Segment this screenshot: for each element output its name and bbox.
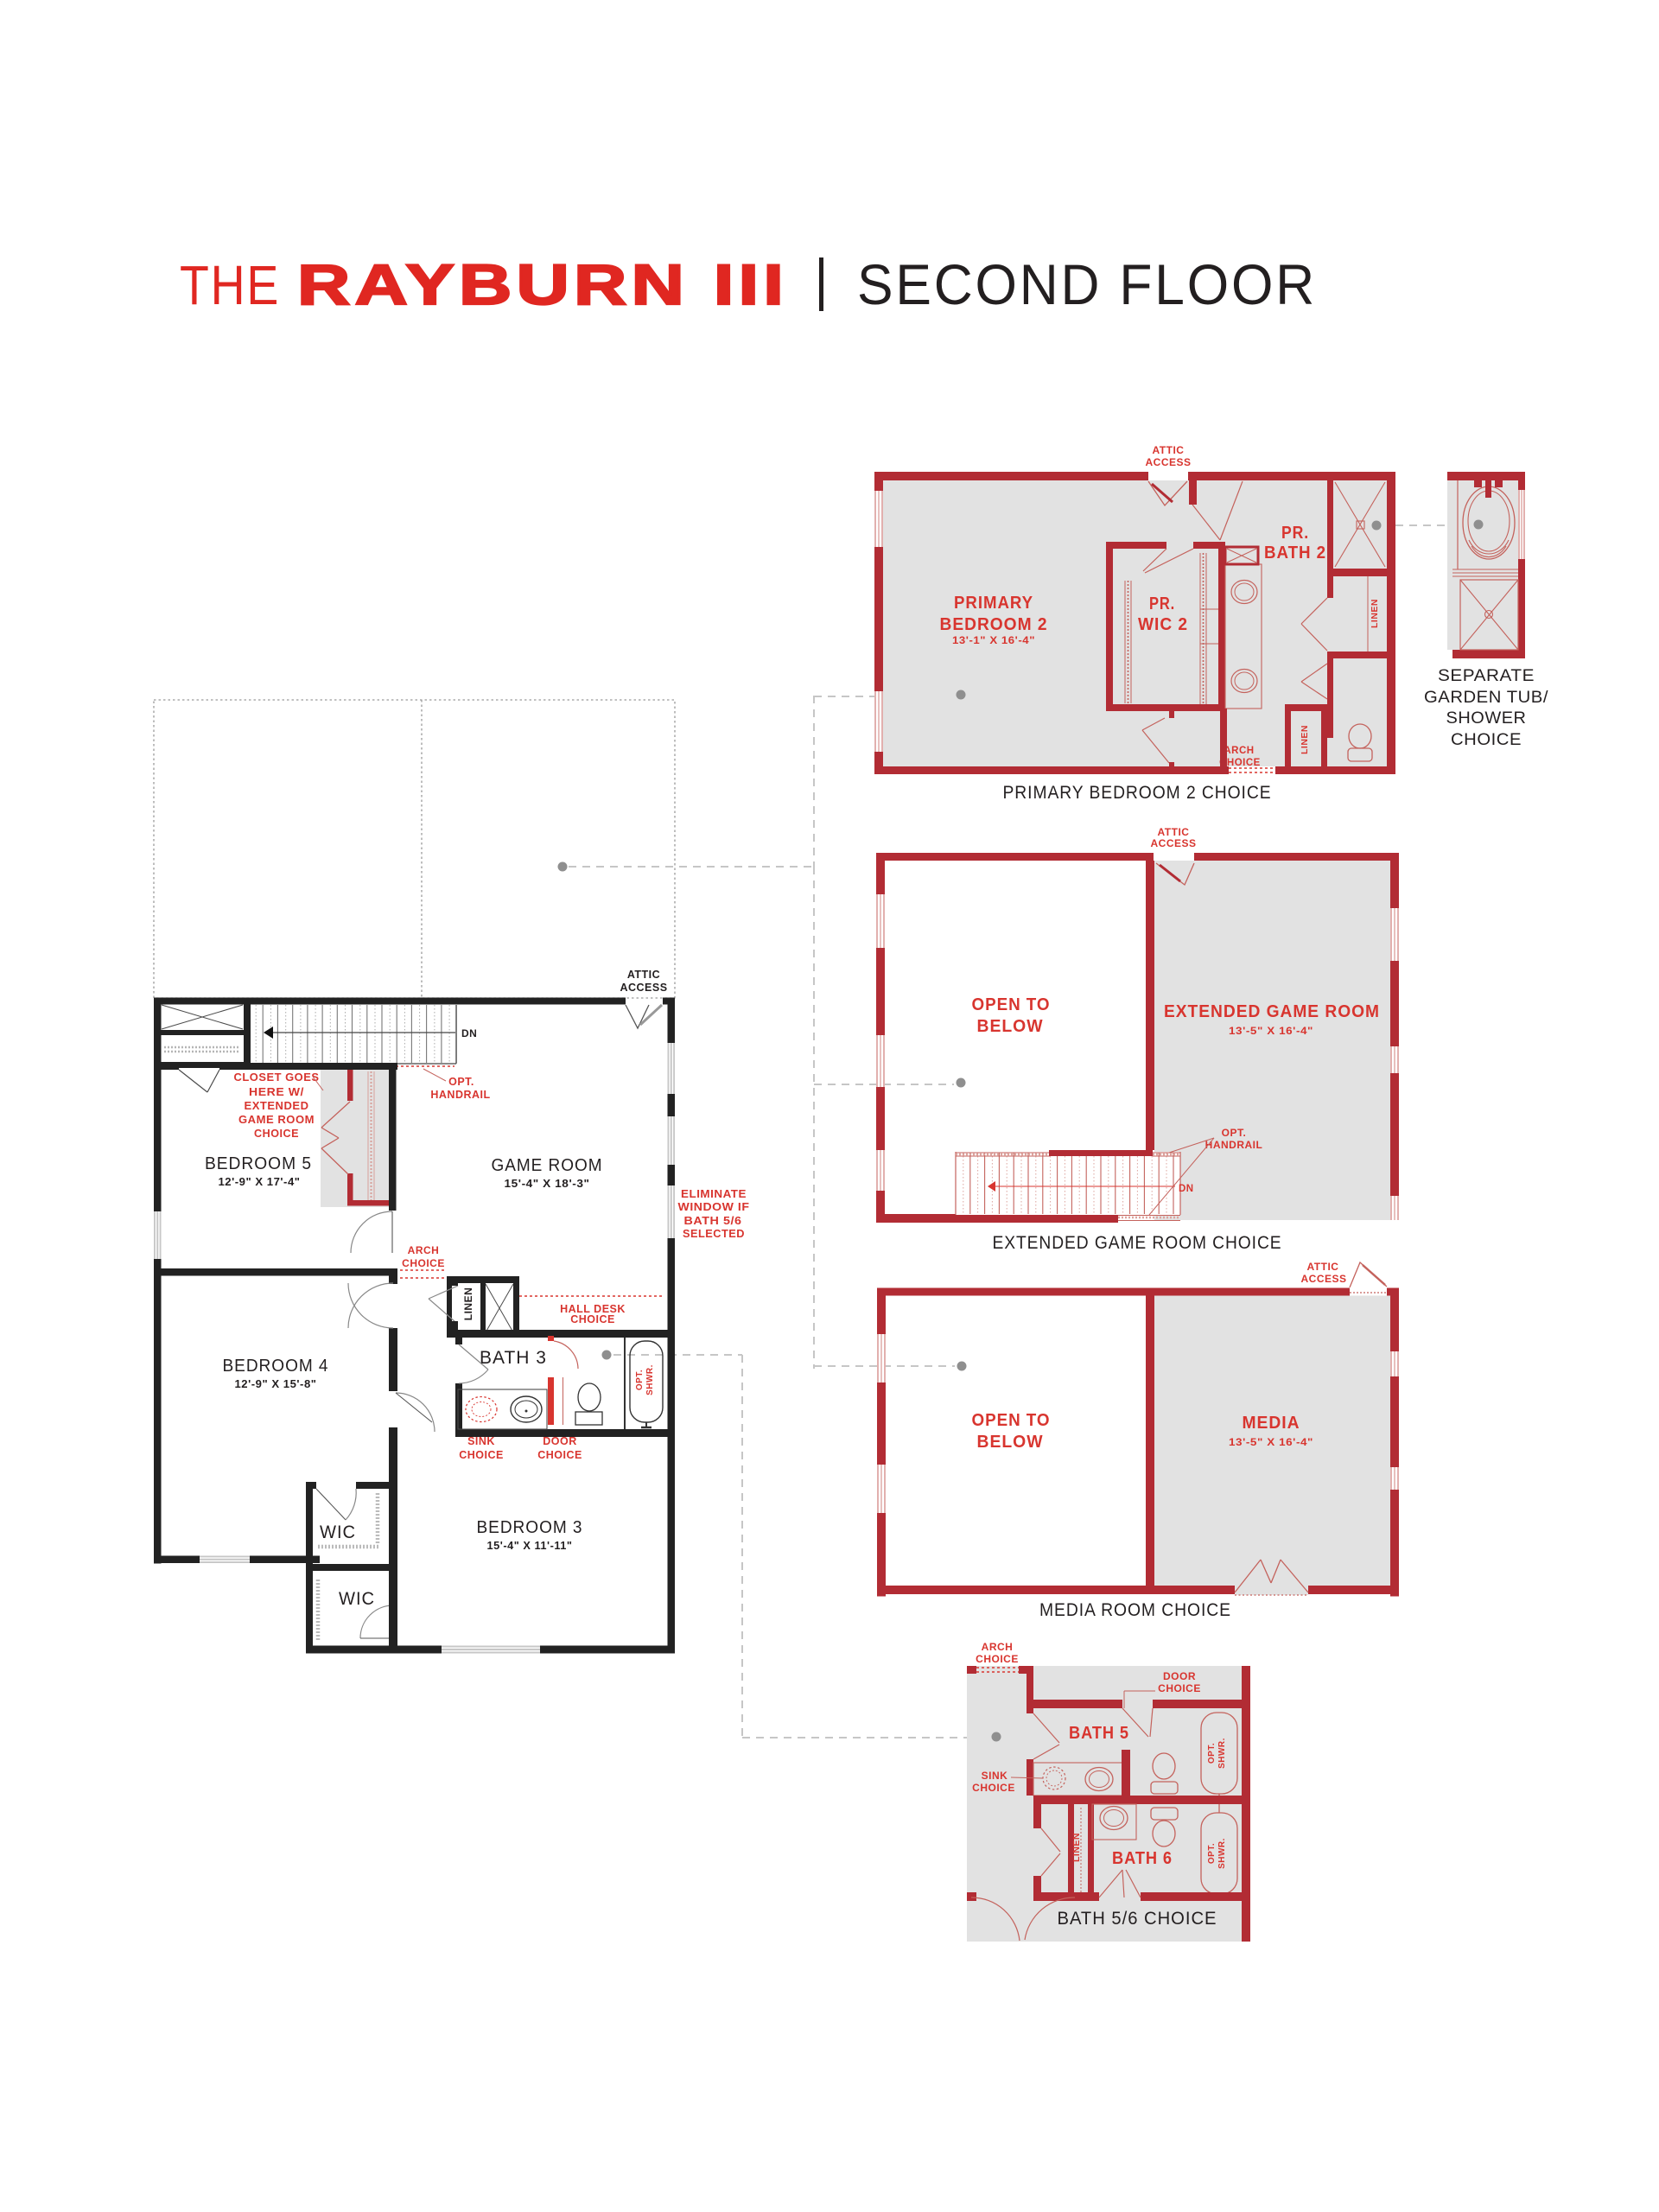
svg-text:SHWR.: SHWR. (645, 1364, 655, 1395)
svg-text:OPEN TO: OPEN TO (972, 1411, 1051, 1430)
svg-text:OPT.: OPT. (635, 1370, 645, 1390)
svg-text:BELOW: BELOW (977, 1433, 1044, 1452)
svg-text:PRIMARY: PRIMARY (954, 594, 1033, 613)
svg-text:DOOR: DOOR (543, 1435, 577, 1447)
svg-text:CHOICE: CHOICE (972, 1782, 1015, 1794)
svg-text:CHOICE: CHOICE (402, 1257, 445, 1269)
svg-text:BATH 3: BATH 3 (480, 1348, 547, 1368)
svg-text:SECOND FLOOR: SECOND FLOOR (857, 252, 1317, 316)
svg-text:ARCH: ARCH (408, 1244, 440, 1256)
svg-text:BEDROOM 2: BEDROOM 2 (940, 615, 1048, 634)
svg-text:SEPARATE: SEPARATE (1438, 667, 1535, 685)
svg-text:SELECTED: SELECTED (683, 1227, 745, 1240)
svg-text:BATH 5: BATH 5 (1069, 1724, 1129, 1743)
svg-text:OPT.: OPT. (1222, 1127, 1247, 1139)
svg-text:CHOICE: CHOICE (976, 1653, 1019, 1665)
svg-text:GAME ROOM: GAME ROOM (238, 1114, 315, 1126)
svg-text:CHOICE: CHOICE (537, 1449, 582, 1461)
svg-text:WIC: WIC (339, 1589, 375, 1609)
svg-text:OPEN TO: OPEN TO (972, 995, 1051, 1014)
svg-text:ACCESS: ACCESS (1150, 837, 1196, 849)
svg-text:EXTENDED: EXTENDED (245, 1100, 309, 1112)
svg-text:BATH 6: BATH 6 (1112, 1849, 1173, 1868)
svg-text:THE: THE (180, 254, 280, 316)
svg-text:ARCH: ARCH (982, 1641, 1014, 1653)
svg-text:HERE W/: HERE W/ (249, 1086, 304, 1098)
svg-text:HANDRAIL: HANDRAIL (430, 1089, 490, 1101)
svg-text:OPT.: OPT. (1207, 1843, 1217, 1864)
svg-text:RAYBURN III: RAYBURN III (297, 252, 788, 316)
svg-text:EXTENDED GAME ROOM: EXTENDED GAME ROOM (1164, 1002, 1380, 1021)
svg-text:SINK: SINK (467, 1435, 495, 1447)
svg-text:EXTENDED GAME ROOM CHOICE: EXTENDED GAME ROOM CHOICE (993, 1233, 1282, 1253)
svg-text:BEDROOM 3: BEDROOM 3 (477, 1518, 583, 1537)
svg-text:CHOICE: CHOICE (1451, 731, 1522, 749)
svg-text:ACCESS: ACCESS (1300, 1273, 1346, 1285)
svg-text:BATH 5/6: BATH 5/6 (684, 1214, 742, 1227)
svg-text:PRIMARY BEDROOM 2 CHOICE: PRIMARY BEDROOM 2 CHOICE (1003, 783, 1272, 803)
svg-text:15'-4" X 18'-3": 15'-4" X 18'-3" (505, 1178, 590, 1190)
svg-text:BEDROOM 4: BEDROOM 4 (223, 1357, 329, 1376)
svg-text:ATTIC: ATTIC (1153, 444, 1185, 456)
svg-text:ACCESS: ACCESS (620, 982, 667, 994)
svg-text:CLOSET GOES: CLOSET GOES (234, 1071, 320, 1084)
svg-text:WIC 2: WIC 2 (1138, 615, 1188, 634)
svg-text:CHOICE: CHOICE (570, 1313, 615, 1325)
svg-text:MEDIA ROOM CHOICE: MEDIA ROOM CHOICE (1039, 1600, 1231, 1620)
svg-text:CHOICE: CHOICE (254, 1128, 299, 1140)
svg-text:GAME ROOM: GAME ROOM (492, 1156, 603, 1175)
svg-text:HANDRAIL: HANDRAIL (1205, 1139, 1263, 1151)
svg-text:SINK: SINK (982, 1770, 1008, 1782)
svg-text:DN: DN (1179, 1184, 1194, 1194)
svg-text:ATTIC: ATTIC (1158, 826, 1190, 838)
svg-text:OPT.: OPT. (448, 1076, 474, 1088)
svg-text:BELOW: BELOW (977, 1017, 1044, 1036)
svg-text:ARCH: ARCH (1224, 746, 1254, 756)
svg-text:OPT.: OPT. (1207, 1743, 1217, 1764)
svg-text:SHWR.: SHWR. (1217, 1738, 1227, 1769)
svg-text:13'-5" X 16'-4": 13'-5" X 16'-4" (1229, 1025, 1313, 1037)
svg-text:BATH 5/6 CHOICE: BATH 5/6 CHOICE (1058, 1909, 1217, 1929)
svg-text:LINEN: LINEN (462, 1287, 474, 1321)
svg-text:WIC: WIC (320, 1522, 356, 1542)
svg-text:12'-9" X 17'-4": 12'-9" X 17'-4" (219, 1176, 301, 1188)
svg-text:ATTIC: ATTIC (1307, 1261, 1339, 1273)
svg-text:MEDIA: MEDIA (1243, 1414, 1300, 1433)
svg-text:ATTIC: ATTIC (627, 969, 660, 981)
svg-text:BEDROOM 5: BEDROOM 5 (205, 1154, 312, 1173)
svg-text:LINEN: LINEN (1300, 725, 1310, 754)
svg-text:DN: DN (461, 1027, 477, 1039)
svg-text:13'-5" X 16'-4": 13'-5" X 16'-4" (1229, 1436, 1313, 1448)
svg-text:GARDEN TUB/: GARDEN TUB/ (1424, 689, 1548, 707)
svg-text:DOOR: DOOR (1163, 1670, 1196, 1682)
svg-text:SHOWER: SHOWER (1446, 709, 1527, 728)
svg-text:CHOICE: CHOICE (459, 1449, 504, 1461)
svg-text:CHOICE: CHOICE (1158, 1682, 1201, 1694)
svg-text:LINEN: LINEN (1071, 1833, 1082, 1862)
svg-text:PR.: PR. (1149, 594, 1175, 613)
svg-text:13'-1" X 16'-4": 13'-1" X 16'-4" (952, 634, 1035, 646)
svg-text:12'-9" X 15'-8": 12'-9" X 15'-8" (235, 1378, 317, 1390)
svg-text:SHWR.: SHWR. (1217, 1838, 1227, 1869)
svg-text:PR.: PR. (1281, 524, 1309, 543)
svg-text:LINEN: LINEN (1370, 599, 1380, 628)
svg-text:WINDOW IF: WINDOW IF (678, 1200, 750, 1213)
svg-text:ELIMINATE: ELIMINATE (681, 1187, 747, 1200)
svg-text:BATH 2: BATH 2 (1264, 543, 1326, 563)
svg-text:ACCESS: ACCESS (1145, 456, 1191, 468)
svg-text:15'-4" X 11'-11": 15'-4" X 11'-11" (487, 1540, 573, 1552)
